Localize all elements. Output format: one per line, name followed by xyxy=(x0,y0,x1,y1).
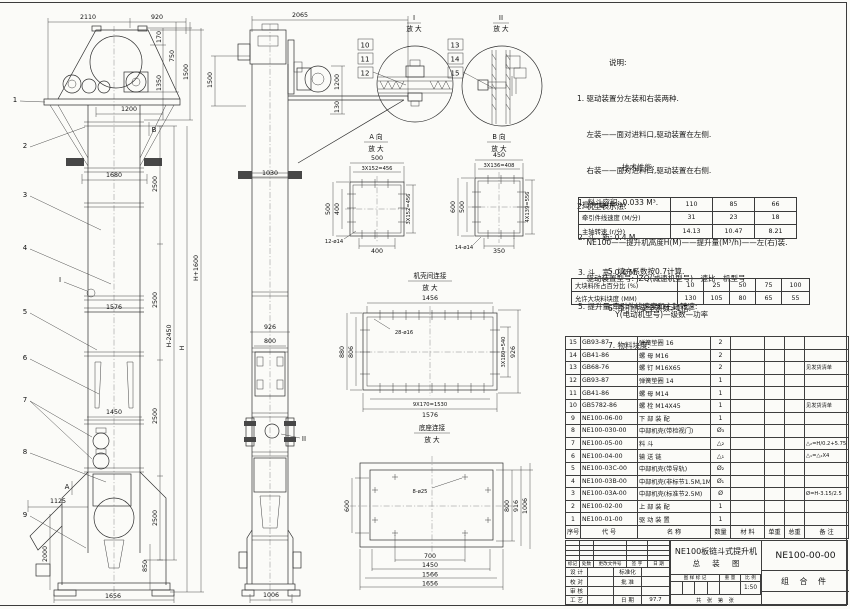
dim-label: 2500 xyxy=(152,292,159,308)
scale-label: 比 例 xyxy=(741,575,761,582)
detail-subtitle: 放 大 xyxy=(424,435,440,444)
detail-subtitle: 放 大 xyxy=(406,24,422,33)
dim-label: 450 xyxy=(493,152,505,159)
view-subtitle: 放 大 xyxy=(368,144,384,153)
title-block-revision-area: 标记 处数 更改文件号 签 字 日 期 设 计标准化 校 对批 准 审 核 工 … xyxy=(566,541,670,604)
dim-label: 1576 xyxy=(106,304,122,311)
dim-label: 806 xyxy=(348,346,355,358)
balloon: 3 xyxy=(23,191,27,199)
dim-label: 1200 xyxy=(121,106,137,113)
cell: 66 xyxy=(755,198,797,212)
base-detail: 底座连接 放 大 8-ø25 600 800 916 1006 700 1450… xyxy=(344,423,533,590)
note-line: 1. 驱动装置分左装和右装两种. xyxy=(577,93,788,105)
balloon: 7 xyxy=(23,396,27,404)
dim-label: 1656 xyxy=(422,581,438,588)
cell: 10.47 xyxy=(713,225,755,239)
drawing-canvas: 2110 920 170 750 1350 1500 1200 B 1680 1… xyxy=(0,0,563,609)
dim-label: 920 xyxy=(151,14,163,21)
date-value: 97.7 xyxy=(642,596,670,605)
title-block-center: NE100板链斗式提升机 总 装 图 图 样 标 记 重 量 比 例 1:50 … xyxy=(670,541,761,604)
role-label: 审 核 xyxy=(566,587,588,596)
cell: 85 xyxy=(713,198,755,212)
dim-label: 2000 xyxy=(42,546,49,562)
balloon: 13 xyxy=(451,42,460,50)
dim-label: 2500 xyxy=(152,176,159,192)
dim-label: 500 xyxy=(371,155,383,162)
bom-row: 15GB93-87弹簧垫圈 162 xyxy=(566,337,849,350)
cell: 8.21 xyxy=(755,225,797,239)
drawing-number: NE100-00-00 xyxy=(762,541,849,571)
bom-row: 5NE100-03C-00中部机壳(带导轨)Ø₂ xyxy=(566,462,849,475)
lump-size-table: 大块料所占百分比 (%) 10 25 50 75 100 允许大块料块度 (MM… xyxy=(571,278,810,305)
dim-label: 850 xyxy=(142,560,149,572)
dim-label: 926 xyxy=(264,324,276,331)
rev-header: 处数 xyxy=(580,561,594,568)
view-marker-a: A xyxy=(65,483,70,491)
dim-label: 916 xyxy=(513,500,520,512)
cell: 25 xyxy=(704,279,730,292)
side-view-dimensions: 2065 1500 1200 130 1030 926 800 1006 II xyxy=(207,12,408,603)
table-row: 允许大块料块度 (MM) 130 105 80 65 55 xyxy=(572,292,810,305)
dim-label: 3X152=456 xyxy=(361,166,392,172)
dim-label: 1566 xyxy=(422,572,438,579)
weight-label: 重 量 xyxy=(720,575,741,582)
detail-title: I xyxy=(413,14,415,22)
dim-label: 3X152=456 xyxy=(406,193,412,224)
drawing-title: 总 装 图 xyxy=(688,558,745,569)
dim-label: 880 xyxy=(339,346,346,358)
bom-row: 7NE100-05-00料 斗△₂△₂=H/0.2+5.75 xyxy=(566,437,849,450)
view-a-detail: A 向 放 大 500 3X152=456 500 400 3X152=456 … xyxy=(325,132,416,255)
view-b-detail: B 向 放 大 450 3X136=408 600 500 4X139=556 … xyxy=(450,132,535,255)
hole-callout: 28-ø16 xyxy=(395,330,413,336)
dim-label: 1500 xyxy=(183,64,190,80)
balloon: 15 xyxy=(451,70,460,78)
dim-label: 1350 xyxy=(156,75,163,91)
dim-label: 1450 xyxy=(422,562,438,569)
front-view-dimensions: 2110 920 170 750 1350 1500 1200 B 1680 1… xyxy=(13,14,204,603)
balloon: 9 xyxy=(23,511,27,519)
spec-line: 5. 填充系数按0.7计算. xyxy=(608,266,691,278)
dim-label: 800 xyxy=(264,338,276,345)
cell: 55 xyxy=(782,292,810,305)
dim-label: 700 xyxy=(424,553,436,560)
cell: 允许大块料块度 (MM) xyxy=(572,292,678,305)
title-block-right: NE100-00-00 组 合 件 xyxy=(761,541,849,604)
dim-label: 400 xyxy=(334,203,341,215)
dim-label: 1680 xyxy=(106,172,122,179)
balloon: 6 xyxy=(23,354,28,362)
dim-label: 750 xyxy=(169,50,176,62)
balloon: 12 xyxy=(361,70,370,78)
dim-label: 500 xyxy=(459,201,466,213)
cell: 65 xyxy=(756,292,782,305)
cell: 50 xyxy=(730,279,756,292)
balloon: 1 xyxy=(13,96,17,104)
dim-label: 1006 xyxy=(522,498,529,514)
cell: 110 xyxy=(671,198,713,212)
cell: 大块料所占百分比 (%) xyxy=(572,279,678,292)
dim-label: 2500 xyxy=(152,408,159,424)
role-label: 日 期 xyxy=(614,596,642,605)
bom-row: 8NE100-030-00中部机壳(带检视门)Ø₃ xyxy=(566,425,849,438)
role-label: 校 对 xyxy=(566,577,588,586)
hole-callout: 14-ø14 xyxy=(455,245,474,251)
dim-label: 350 xyxy=(493,248,505,255)
balloon: 8 xyxy=(23,448,27,456)
cell: 130 xyxy=(678,292,704,305)
dim-label: 600 xyxy=(450,201,457,213)
dim-label: 2110 xyxy=(80,14,96,21)
detail-marker-1: I xyxy=(59,276,61,284)
detail-subtitle: 放 大 xyxy=(493,24,509,33)
performance-table: 提 升 量 (M³/h) 110 85 66 牵引件线速度 (M/分) 31 2… xyxy=(578,197,797,239)
balloon: 11 xyxy=(361,56,370,64)
cell: 提 升 量 (M³/h) xyxy=(579,198,671,212)
cell: 75 xyxy=(756,279,782,292)
detail-marker-2: II xyxy=(302,435,306,443)
shell-joint-detail: 机壳间连接 放 大 1456 28-ø16 880 806 3X180=540 … xyxy=(339,271,521,419)
table-row: 主轴转速 (r/分) 14.13 10.47 8.21 xyxy=(579,225,797,239)
rev-header: 标记 xyxy=(566,561,580,568)
detail-subtitle: 放 大 xyxy=(422,283,438,292)
balloon: 5 xyxy=(23,308,27,316)
bom-row: 4NE100-03B-00中部机壳(非标节1.5M,1M)Ø₁ xyxy=(566,475,849,488)
rev-header: 更改文件号 xyxy=(594,561,627,568)
bom-row: 13GB68-76螺 钉 M16X652见发货清单 xyxy=(566,362,849,375)
dim-label: 3X180=540 xyxy=(501,336,507,367)
rev-header: 签 字 xyxy=(627,561,648,568)
dim-label: 9X170=1530 xyxy=(413,402,447,408)
cell: 14.13 xyxy=(671,225,713,239)
specs-heading: 技术性能: xyxy=(578,162,697,174)
role-label: 设 计 xyxy=(566,568,588,577)
detail-view-2: II 放 大 13 14 15 xyxy=(448,14,542,126)
dim-label: 600 xyxy=(344,500,351,512)
dim-label: H xyxy=(179,345,186,350)
rev-header: 日 期 xyxy=(648,561,670,568)
bom-table: 15GB93-87弹簧垫圈 162 14GB41-86螺 母 M162 13GB… xyxy=(565,336,849,539)
detail-title: 机壳间连接 xyxy=(414,271,447,280)
bom-row: 3NE100-03A-00中部机壳(标准节2.5M)ØØ=H-3.15/2.5 xyxy=(566,488,849,501)
cell: 18 xyxy=(755,211,797,225)
dim-label: 800 xyxy=(504,500,511,512)
cell: 105 xyxy=(704,292,730,305)
cell: 10 xyxy=(678,279,704,292)
detail-view-1: I 放 大 10 11 12 xyxy=(358,14,453,122)
cell: 主轴转速 (r/分) xyxy=(579,225,671,239)
view-title: B 向 xyxy=(492,132,505,141)
hole-callout: 12-ø14 xyxy=(325,239,344,245)
table-row: 提 升 量 (M³/h) 110 85 66 xyxy=(579,198,797,212)
cell: 31 xyxy=(671,211,713,225)
dim-label: 1030 xyxy=(262,170,278,177)
dim-label: 2065 xyxy=(292,12,308,19)
dim-label: 3X136=408 xyxy=(483,163,514,169)
sheet-count: 共 张 第 张 xyxy=(671,595,761,605)
dim-label: 130 xyxy=(334,101,341,113)
role-label: 批 准 xyxy=(614,577,642,586)
notes-heading: 说明: xyxy=(577,57,788,69)
cell: 80 xyxy=(730,292,756,305)
table-row: 大块料所占百分比 (%) 10 25 50 75 100 xyxy=(572,279,810,292)
dim-label: 2500 xyxy=(152,510,159,526)
cell: 牵引件线速度 (M/分) xyxy=(579,211,671,225)
view-marker-b: B xyxy=(152,126,157,134)
dim-label: 1200 xyxy=(334,74,341,90)
dim-label: 170 xyxy=(156,31,163,43)
product-name: NE100板链斗式提升机 xyxy=(675,546,757,557)
drawing-sheet: 2110 920 170 750 1350 1500 1200 B 1680 1… xyxy=(0,0,850,609)
title-block: 标记 处数 更改文件号 签 字 日 期 设 计标准化 校 对批 准 审 核 工 … xyxy=(565,540,848,605)
dim-label: 1576 xyxy=(422,412,438,419)
role-label: 工 艺 xyxy=(566,596,588,605)
bom-row: 1NE100-01-00驱 动 装 置1 xyxy=(566,513,849,526)
detail-title: 底座连接 xyxy=(419,423,446,432)
stamp-label: 图 样 标 记 xyxy=(671,575,720,582)
dim-label: 400 xyxy=(371,248,383,255)
dim-label: 1500 xyxy=(207,72,214,88)
dim-label: 926 xyxy=(510,346,517,358)
cell: 23 xyxy=(713,211,755,225)
bom-row: 9NE100-06-00下 部 装 配1 xyxy=(566,412,849,425)
balloon: 14 xyxy=(451,56,460,64)
bom-row: 14GB41-86螺 母 M162 xyxy=(566,349,849,362)
dim-label: 1456 xyxy=(422,295,438,302)
scale-value: 1:50 xyxy=(741,582,761,595)
table-row: 牵引件线速度 (M/分) 31 23 18 xyxy=(579,211,797,225)
dim-label: 1006 xyxy=(263,592,279,599)
bom-row: 12GB93-87弹簧垫圈 141 xyxy=(566,374,849,387)
role-label: 标准化 xyxy=(614,568,642,577)
dim-label: H-2450 xyxy=(166,324,173,347)
dim-label: 1656 xyxy=(105,593,121,600)
dim-label: 4X139=556 xyxy=(525,191,531,222)
balloon: 10 xyxy=(361,42,370,50)
bom-row: 2NE100-02-00上 部 装 配1 xyxy=(566,500,849,513)
balloon: 4 xyxy=(23,244,28,252)
detail-title: II xyxy=(499,14,503,22)
cell: 100 xyxy=(782,279,810,292)
bom-row: 11GB41-86螺 母 M141 xyxy=(566,387,849,400)
bom-header-row: 序号代 号名 称数量材 料单重总重备 注 xyxy=(566,525,849,538)
bom-row: 6NE100-04-00输 送 链△₁△₁=△₂X4 xyxy=(566,450,849,463)
bom-row: 10GB5782-86螺 栓 M14X451见发货清单 xyxy=(566,399,849,412)
hole-callout: 8-ø25 xyxy=(413,489,428,495)
dim-label: 1125 xyxy=(50,498,66,505)
dim-label: 1450 xyxy=(106,409,122,416)
view-title: A 向 xyxy=(369,132,382,141)
balloon: 2 xyxy=(23,142,27,150)
dim-label: 500 xyxy=(325,203,332,215)
part-class: 组 合 件 xyxy=(762,571,849,592)
dim-label: H+1600 xyxy=(193,255,200,281)
